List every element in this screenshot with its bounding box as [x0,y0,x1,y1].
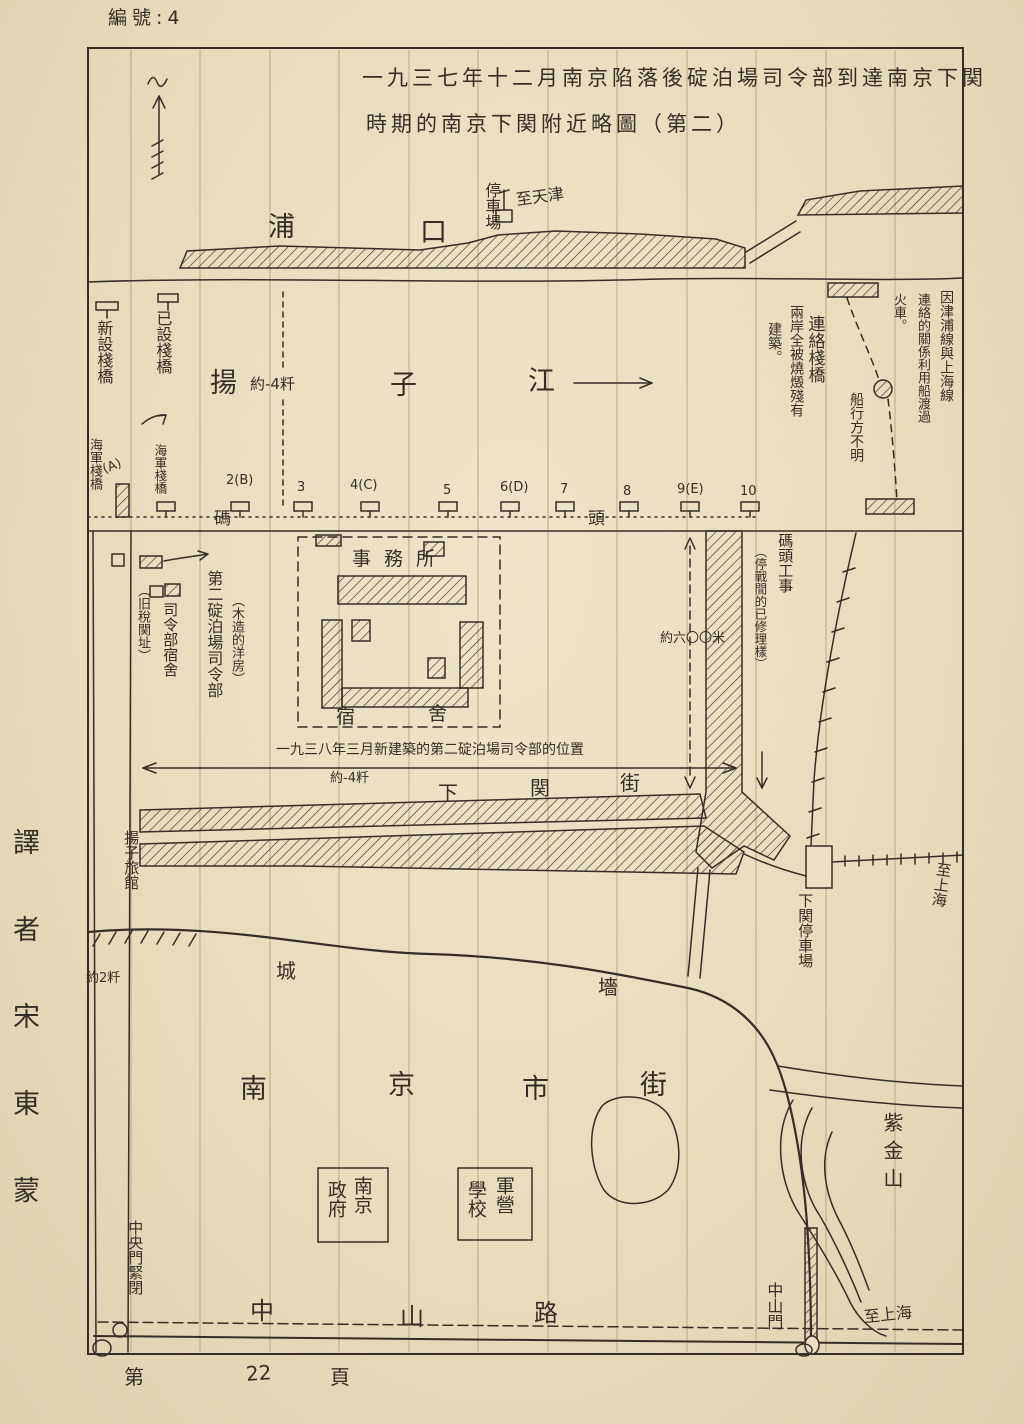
new-pier-label: 新設棧橋 [94,320,112,384]
hq-label-paren: （木造的洋房） [228,594,243,685]
dist-600m-note: 約六〇〇米 [660,632,725,647]
map-title-line1: 一九三七年十二月南京陷落後碇泊場司令部到達南京下関 [362,66,987,90]
hq-dorm-paren: （旧稅関址） [134,584,149,662]
map-title-line2: 時期的南京下関附近略圖（第二） [366,112,741,136]
city-char-3: 市 [522,1074,549,1105]
xiaguan-street-char-1: 下 [438,782,458,805]
yangtze-char-2: 子 [390,370,417,401]
pier-num-8: 8 [623,485,631,500]
city-wall [88,929,963,1347]
north-arrow-icon [148,77,167,179]
yangtze-char-3: 江 [528,366,555,397]
existing-pier-label: 已設棧橋 [153,310,171,374]
wharf-road [688,531,790,978]
pier-num-9e: 9(E) [677,483,704,498]
wharf-works-label: 碼頭工事 [776,533,793,593]
city-char-1: 南 [240,1074,267,1105]
yangtze-hotel-label: 揚子旅館 [122,830,139,890]
doc-number: 編號:4 [108,8,185,30]
zhongshan-gate-label: 中山門 [764,1282,782,1330]
xiaguan-station-label: 下関停車場 [796,893,813,968]
yangtze-char-1: 揚 [210,368,237,399]
river-width-note: 約-4粁 [250,376,295,393]
wall-char-1: 城 [276,960,296,983]
new-site-note: 一九三八年三月新建築的第二碇泊場司令部的位置 [276,742,584,758]
pier-num-2b: 2(B) [226,474,253,489]
pier-num-7: 7 [560,483,568,498]
xiaguan-street-char-3: 街 [620,772,640,795]
pier-num-3: 3 [297,481,305,496]
translator-note: 譯者宋東蒙 [8,828,39,1263]
dorm-char-2: 舍 [428,704,447,726]
pukou-char-2: 口 [420,217,447,248]
wharf-works-paren: （停戰間的已修理樣） [752,545,766,670]
xiaguan-street-band [140,794,744,874]
wall-char-2: 墻 [598,976,618,999]
pond-outline [592,1097,679,1204]
wharf-char-right: 頭 [588,510,605,530]
liaison-bridge-label: 連絡棧橋 [804,315,824,383]
dorm-char-1: 宿 [336,707,355,729]
hq-legend-icons [112,551,208,597]
zhongshan-road-lines [94,1322,963,1344]
zhongshan-road-char-2: 山 [400,1304,424,1332]
hq-dorm-label: 司令部宿舍 [161,602,178,677]
city-char-4: 街 [640,1070,667,1101]
pier-num-10: 10 [740,485,757,500]
banks-burned-col2: 建築。 [766,322,782,364]
ship-unknown-label: 船行方不明 [848,392,864,462]
pukou-char-1: 浦 [268,212,295,243]
hq-label: 第二碇泊場司令部 [204,570,222,698]
navy-pier-right-label: 海軍棧橋 [152,444,166,494]
river-marks [283,292,652,508]
office-label: 事務所 [352,549,448,571]
govt-box-col1: 南京 [350,1176,372,1214]
scanned-map-page: { "page": { "doc_number": "編號:4", "trans… [0,0,1024,1424]
footer-page-number: 22 [245,1361,272,1386]
footer-prefix: 第 [124,1366,144,1389]
navy-pier-left-label: 海軍棧橋 [86,438,101,490]
pier-num-6d: 6(D) [500,481,528,496]
zhongshan-road-char-3: 路 [534,1300,558,1328]
central-gate-label: 中央門緊閉 [126,1220,143,1295]
dist-2km-note: 約2粁 [86,972,120,987]
wharf-char-left: 碼 [214,510,231,530]
jinpu-note-col2: 連絡的關係利用船渡過 [914,293,929,423]
camp-box-col1: 軍營 [492,1176,514,1214]
city-char-2: 京 [388,1070,415,1101]
govt-box-col2: 政府 [324,1180,346,1218]
footer-suffix: 頁 [330,1366,350,1389]
xiaguan-street-char-2: 関 [530,777,550,800]
pier-num-4c: 4(C) [350,479,378,494]
jinpu-note-col1: 因津浦線與上海線 [938,290,954,402]
pier-num-5: 5 [443,484,451,499]
banks-burned-col1: 兩岸全被燒燬殘有 [788,305,804,417]
zhongshan-road-char-1: 中 [250,1298,274,1326]
pukou-station-label: 停車場 [482,182,500,230]
purple-mountain-label: 紫金山 [880,1112,903,1196]
new-site-dist: 約-4粁 [330,772,369,787]
jinpu-note-col3: 火車。 [890,293,905,332]
camp-box-col2: 學校 [464,1180,486,1218]
